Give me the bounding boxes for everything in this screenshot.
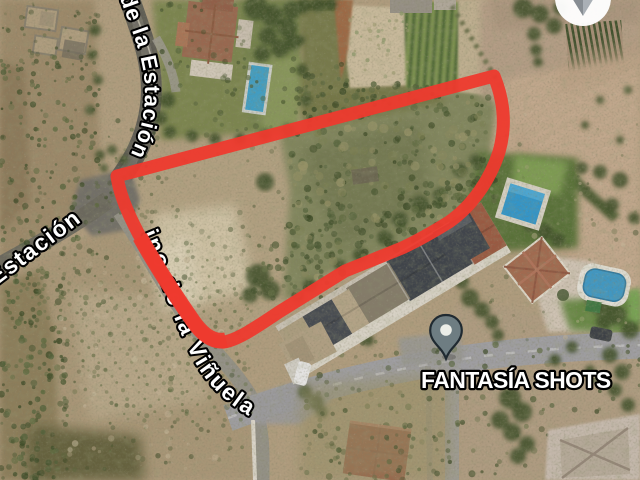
svg-text:FANTASÍA SHOTS: FANTASÍA SHOTS (421, 366, 611, 393)
